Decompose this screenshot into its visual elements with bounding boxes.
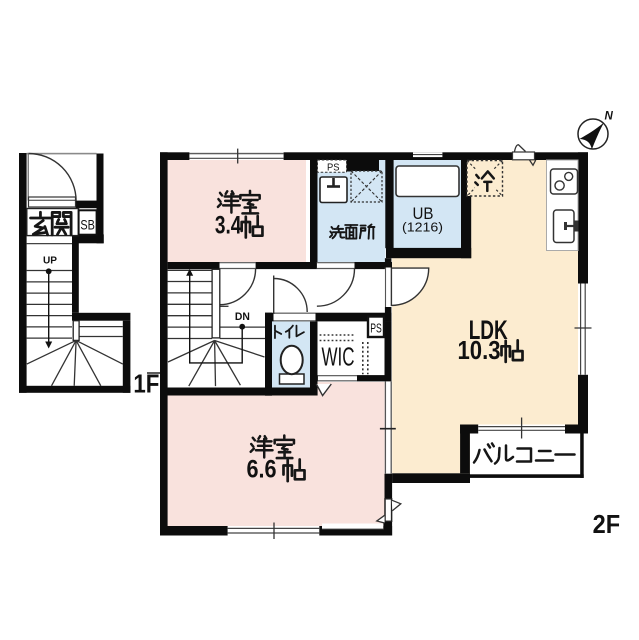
svg-text:WIC: WIC bbox=[322, 342, 355, 372]
svg-text:3.4: 3.4 bbox=[215, 212, 242, 240]
svg-text:2F: 2F bbox=[593, 509, 621, 539]
svg-text:PS: PS bbox=[370, 321, 382, 336]
svg-text:DN: DN bbox=[235, 311, 250, 323]
svg-text:N: N bbox=[605, 111, 614, 123]
svg-text:UP: UP bbox=[43, 254, 57, 266]
svg-text:10.3: 10.3 bbox=[458, 335, 501, 365]
svg-text:PS: PS bbox=[327, 162, 340, 174]
svg-text:SB: SB bbox=[80, 216, 95, 232]
svg-text:(1216): (1216) bbox=[402, 220, 443, 235]
svg-text:6.6: 6.6 bbox=[247, 456, 277, 484]
